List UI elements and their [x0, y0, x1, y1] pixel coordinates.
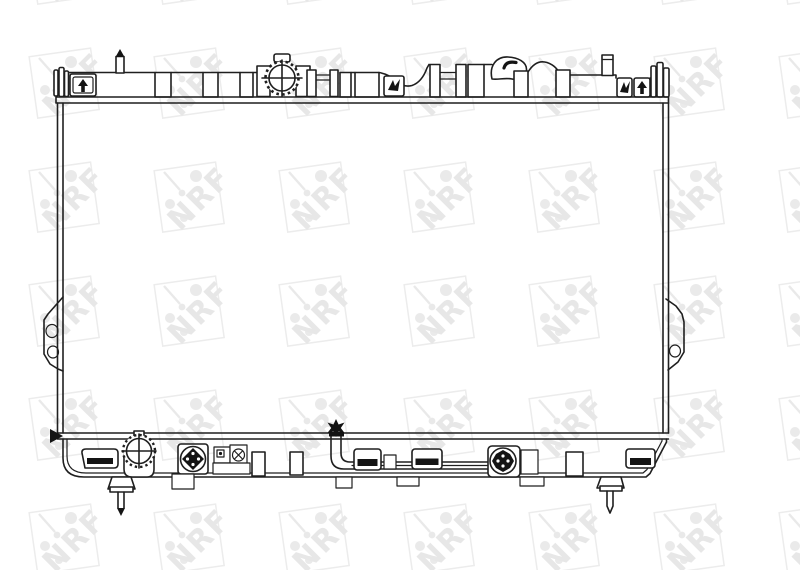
bottom-clip-left	[82, 449, 118, 468]
bottom-tab-2	[290, 452, 303, 475]
retaining-clip-mid	[384, 76, 404, 96]
retaining-clip-left	[70, 74, 96, 96]
bottom-clip-left-bar	[87, 458, 113, 464]
radiator-technical-drawing: NRF	[0, 0, 800, 570]
top-tab-4	[340, 73, 351, 98]
bottom-clip-right	[626, 449, 655, 468]
top-tank-left-end-cap	[54, 68, 69, 97]
under-tank-tab-2	[520, 477, 544, 486]
top-mounting-pin-right	[602, 55, 613, 76]
top-tab-1	[155, 73, 171, 98]
top-tab-6	[468, 65, 484, 98]
drawing-canvas: NRF	[0, 0, 800, 570]
pipe-clamp-2-band	[416, 459, 439, 466]
pipe-end-spacer	[521, 450, 538, 474]
pipe-clamp-spacer	[384, 455, 396, 469]
pipe-end-fitting	[488, 446, 538, 477]
bottom-tab-3	[566, 452, 583, 476]
pipe-foot-bracket	[336, 477, 352, 488]
top-tab-8	[556, 70, 570, 97]
pipe-clamp-1-band	[358, 459, 378, 466]
under-tank-tab-1	[397, 477, 419, 486]
bottom-clip-right-bar	[630, 458, 651, 465]
top-tank-right-end-cap	[651, 63, 669, 98]
hose-fitting-tab	[172, 474, 194, 489]
top-tab-3	[240, 73, 253, 98]
screw-fitting	[213, 445, 250, 474]
top-tab-5	[355, 73, 379, 98]
bottom-tab-1	[252, 452, 265, 476]
retaining-clips-right	[617, 78, 650, 97]
pin-right-crossbar	[600, 486, 622, 491]
top-tab-7	[514, 71, 528, 97]
screw-fitting-base	[213, 463, 250, 474]
top-tab-2	[203, 73, 218, 98]
pin-left-crossbar	[110, 487, 133, 492]
